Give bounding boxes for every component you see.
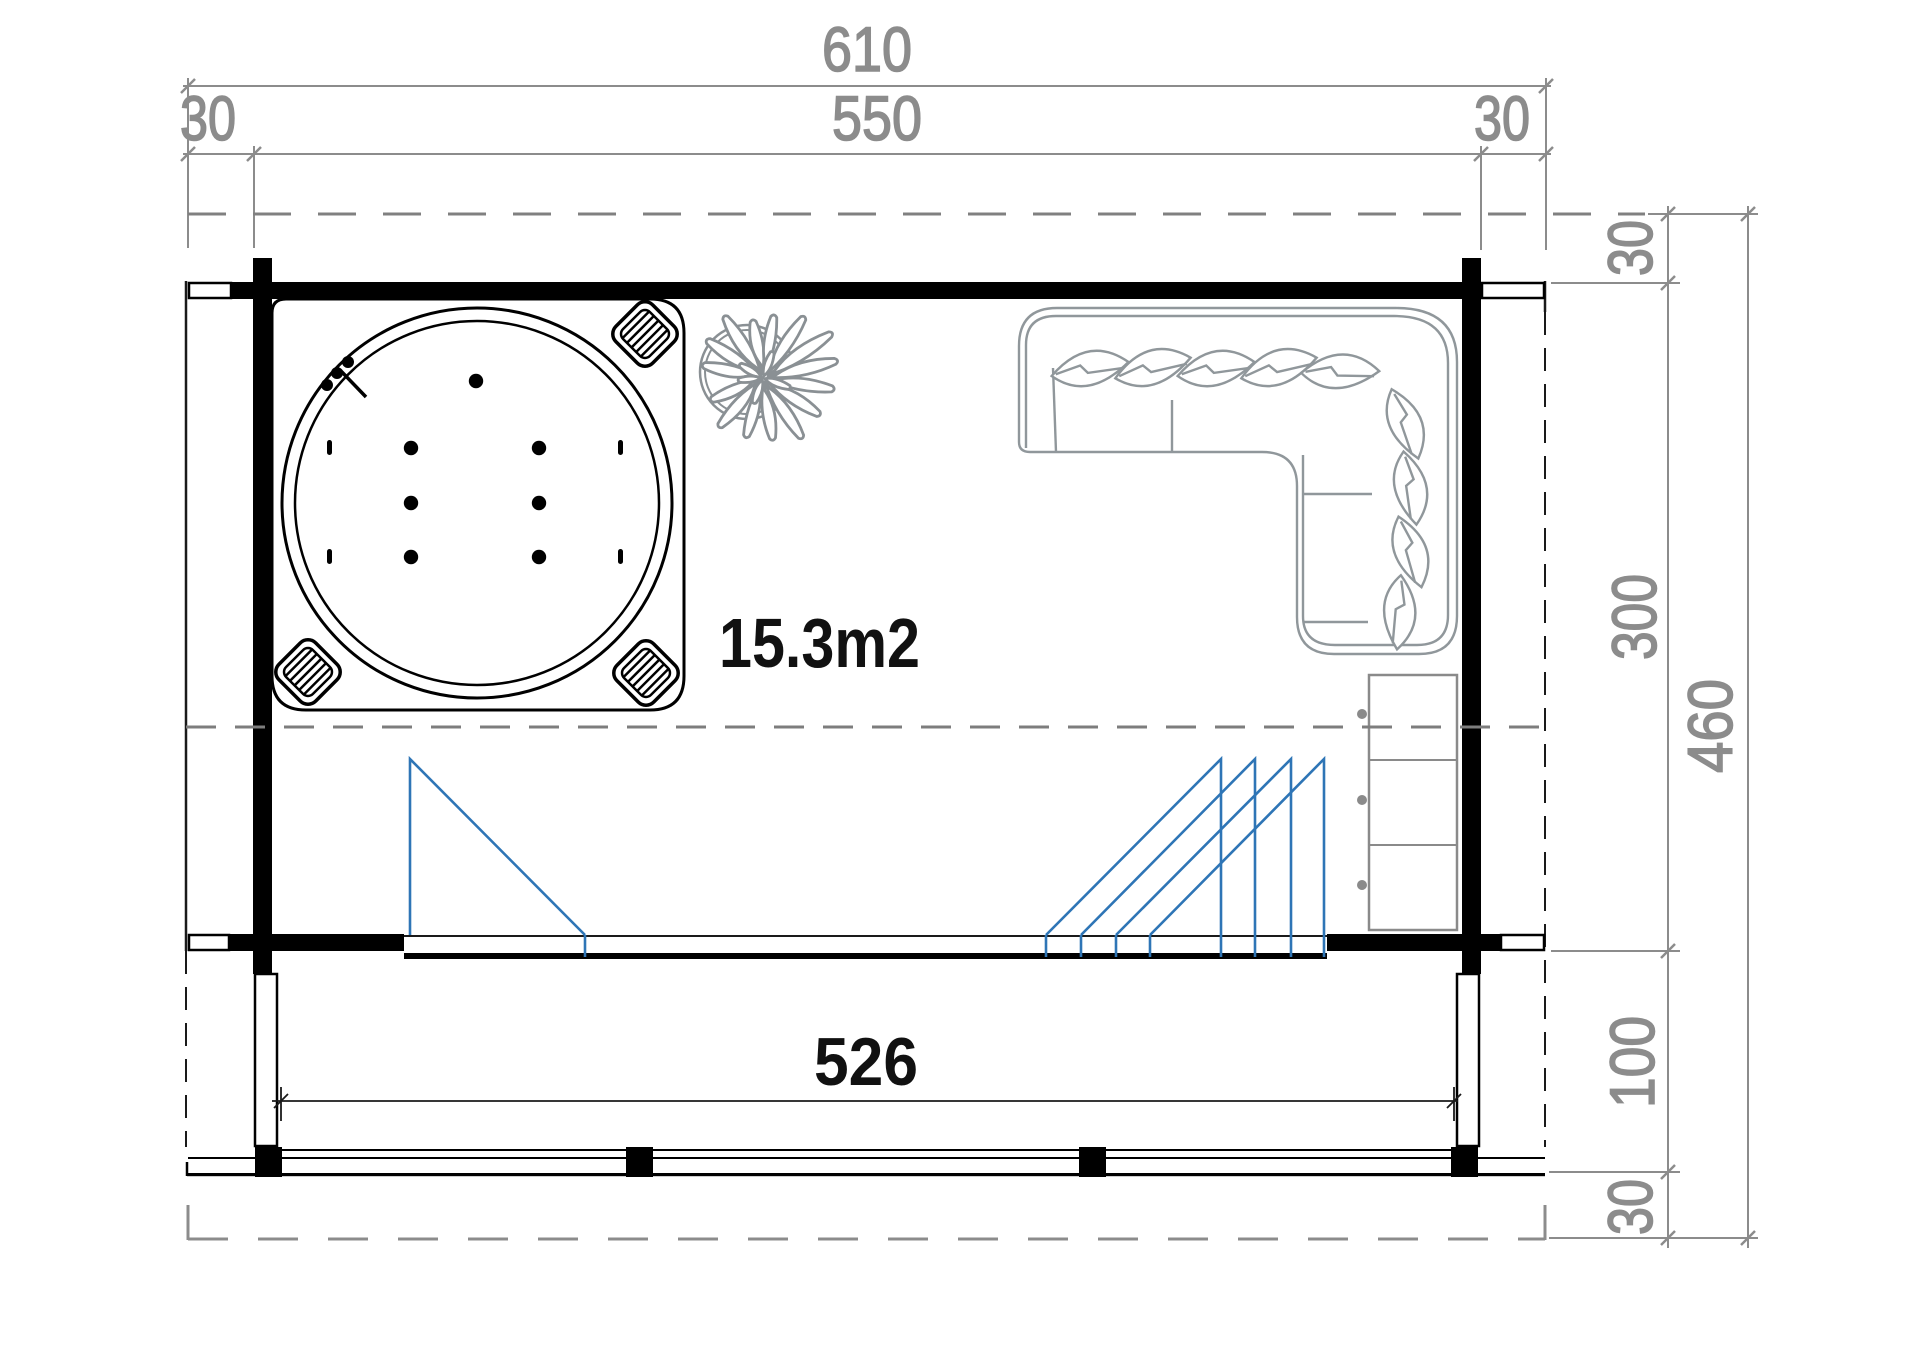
svg-text:30: 30	[180, 84, 236, 154]
svg-text:300: 300	[1600, 574, 1670, 660]
svg-text:550: 550	[832, 84, 922, 154]
svg-text:610: 610	[822, 15, 912, 85]
svg-text:30: 30	[1596, 220, 1666, 276]
svg-text:30: 30	[1596, 1179, 1666, 1235]
svg-text:100: 100	[1598, 1016, 1668, 1108]
svg-text:30: 30	[1474, 84, 1530, 154]
svg-text:15.3m2: 15.3m2	[719, 604, 920, 682]
svg-text:460: 460	[1676, 679, 1746, 773]
svg-text:526: 526	[814, 1024, 918, 1100]
